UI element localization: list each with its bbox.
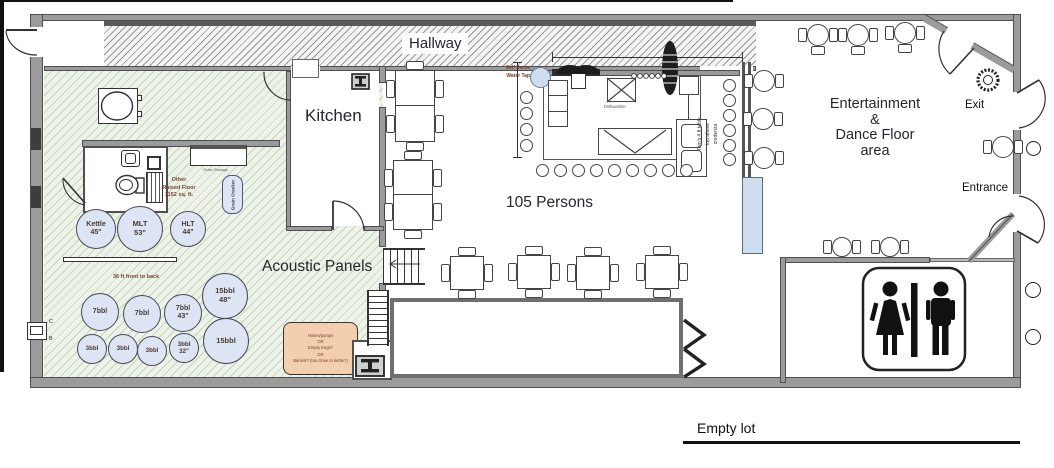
- chair: [852, 240, 861, 254]
- tank-label: 7bbl: [93, 308, 107, 316]
- kitchen-wall-bottom-1: [286, 226, 332, 231]
- chair: [898, 44, 912, 53]
- tank: HLT44": [170, 211, 206, 247]
- corner-diagonal-edge: [924, 14, 1014, 66]
- chair: [386, 115, 395, 133]
- outside-circle-2: [1025, 282, 1041, 298]
- chair: [404, 151, 422, 160]
- table-round: [992, 136, 1014, 158]
- kitchen-wall-bottom-2: [364, 226, 384, 231]
- chair: [811, 46, 825, 55]
- dim-line-v: [517, 62, 518, 158]
- bar-sink-stack: [548, 80, 568, 127]
- chair: [744, 151, 753, 165]
- chair: [406, 61, 424, 70]
- bar-sink-divider-2: [548, 111, 568, 112]
- bar-stool: [644, 164, 657, 177]
- kitchen-wall-left: [286, 71, 291, 228]
- bar-stool: [554, 164, 567, 177]
- bar-stool: [662, 164, 675, 177]
- persons-label: 105 Persons: [506, 194, 593, 212]
- tank: Kettle45": [76, 209, 116, 249]
- chair: [636, 263, 645, 281]
- floor-plan: Kitchen Hallway Grain Storage Other Rais…: [0, 0, 1054, 468]
- chair: [885, 26, 894, 40]
- dim-tick-h1: [552, 52, 553, 62]
- chair: [900, 240, 909, 254]
- chair: [871, 240, 880, 254]
- chair: [525, 289, 543, 298]
- bar-stool: [680, 164, 693, 177]
- table-square: [395, 105, 435, 142]
- tank-label: 3bbl: [117, 345, 130, 352]
- tank-size: 44": [182, 229, 193, 237]
- grain-cracker: Grain Cracker: [222, 175, 243, 214]
- tank-label: 15bbl: [216, 337, 236, 346]
- corner-door-gap: [946, 31, 972, 46]
- table-round: [752, 108, 774, 130]
- toms-note: Tom's 4 ft table top above credenza: [696, 90, 724, 178]
- entertainment-label: Entertainment & Dance Floor area: [805, 97, 945, 160]
- bathroom-vent: [147, 156, 161, 170]
- chair: [851, 46, 865, 55]
- chair: [774, 112, 783, 126]
- ladder-vertical: [367, 290, 389, 346]
- table-square: [450, 256, 484, 290]
- wreath-icon: [978, 70, 998, 90]
- empty-lot-line: [683, 441, 1020, 444]
- tank: 3bbl32": [169, 333, 199, 363]
- bar-stool: [723, 124, 736, 137]
- exit-door: [1017, 80, 1045, 128]
- table-round: [880, 237, 900, 257]
- wall-fixture-inner: [30, 326, 43, 335]
- table-round: [847, 24, 869, 46]
- table-square: [517, 255, 551, 289]
- table-round: [832, 237, 852, 257]
- chair: [404, 230, 422, 239]
- table-round: [753, 70, 775, 92]
- restroom-divider: [911, 283, 918, 357]
- tank-size: 45": [90, 229, 101, 237]
- chair: [435, 115, 444, 133]
- bar-cross-box: [571, 72, 586, 89]
- chair: [525, 246, 543, 255]
- chair: [823, 240, 832, 254]
- restroom-wall-left: [780, 257, 786, 383]
- tank: 7bbl: [123, 295, 161, 333]
- sink-basin: [125, 153, 136, 164]
- chair: [829, 28, 838, 42]
- entrance-door: [1017, 196, 1044, 243]
- outside-circle-1: [1026, 141, 1041, 156]
- bar-stool: [520, 123, 533, 136]
- chair: [458, 290, 476, 299]
- tank-label: 3bbl: [178, 341, 191, 348]
- wall-bottom: [30, 377, 1021, 388]
- utility-room: [352, 340, 392, 380]
- restroom-wall-top: [780, 257, 930, 263]
- chair: [838, 28, 847, 42]
- door-gap-exit: [1013, 92, 1021, 130]
- av-closet: [742, 177, 763, 254]
- chair: [584, 290, 602, 299]
- screen-edge-top: [0, 0, 733, 2]
- tank-label: 3bbl: [86, 345, 99, 352]
- grain-storage-label: Grain Storage: [203, 167, 228, 172]
- chair: [798, 28, 807, 42]
- corner-door: [939, 31, 974, 74]
- table-square: [393, 160, 433, 196]
- kitchen-room: [291, 71, 379, 226]
- chair: [869, 28, 878, 42]
- dishwasher-label: Dishwasher: [604, 104, 626, 109]
- bar-stool: [723, 94, 736, 107]
- table-square: [645, 255, 679, 289]
- vestibule-wall-edge: [969, 214, 1013, 261]
- tank: 15bbl48": [202, 273, 248, 319]
- bar-stool: [723, 109, 736, 122]
- chair: [916, 26, 925, 40]
- chair: [384, 203, 393, 221]
- table-square: [576, 256, 610, 290]
- door-gap-entrance: [1013, 194, 1021, 232]
- chair: [386, 80, 395, 98]
- chair: [743, 112, 752, 126]
- bar-stool: [723, 79, 736, 92]
- marker-b: B: [49, 336, 53, 342]
- tank: 7bbl: [81, 293, 119, 331]
- tank-size: 43": [177, 313, 188, 321]
- grain-storage-shelf: [190, 145, 247, 166]
- bar-stool: [723, 139, 736, 152]
- dishwasher-box: [607, 78, 636, 102]
- bar-stool: [572, 164, 585, 177]
- bar-stool: [536, 164, 549, 177]
- stage-rect: [390, 298, 683, 378]
- table-square: [395, 70, 435, 107]
- dim-tick-v1: [513, 62, 522, 63]
- grain-cracker-label: Grain Cracker: [230, 179, 235, 209]
- chair: [551, 263, 560, 281]
- tank: 3bbl: [77, 334, 107, 364]
- bar-stool: [520, 107, 533, 120]
- other-floor-note: Other Raised Floor 1152 sq. ft.: [148, 177, 210, 200]
- bar-stool: [520, 91, 533, 104]
- door-gap-topleft: [30, 27, 43, 57]
- bar-stool: [723, 153, 736, 166]
- tank-label: Kettle: [86, 221, 105, 229]
- chair: [775, 74, 784, 88]
- wall-top: [30, 14, 1021, 21]
- chair: [433, 203, 442, 221]
- tank: 15bbl: [203, 318, 249, 364]
- table-square: [393, 194, 433, 230]
- tank-label: HLT: [181, 221, 194, 229]
- chair: [775, 151, 784, 165]
- table-round: [807, 24, 829, 46]
- front-to-back-label: 36 ft front to back: [113, 274, 159, 280]
- chair: [458, 247, 476, 256]
- dim-line-h: [552, 57, 743, 58]
- window-left-2: [31, 186, 41, 208]
- entrance-label: Entrance: [962, 182, 1008, 194]
- stairs-horizontal: [383, 248, 425, 285]
- dim-tick-h2: [742, 52, 743, 62]
- chair: [484, 264, 493, 282]
- bar-sink-divider-1: [548, 95, 568, 96]
- exit-label: Exit: [965, 99, 984, 111]
- chair: [433, 169, 442, 187]
- chair: [1014, 140, 1023, 154]
- chair: [744, 74, 753, 88]
- mill-knob-2: [137, 111, 142, 117]
- chair: [610, 264, 619, 282]
- storage-note-box: Hoses/pumps OR Empty Kegs? OR Barrels? (…: [283, 322, 358, 375]
- table-round: [894, 22, 916, 44]
- tank-label: 3bbl: [146, 347, 159, 354]
- pos-connector: [688, 95, 689, 119]
- folding-door-chevrons: [684, 320, 704, 377]
- window-left-1: [31, 128, 41, 150]
- chair: [441, 264, 450, 282]
- tank-size: 32": [179, 348, 189, 355]
- chair: [653, 289, 671, 298]
- tank-size: 48": [219, 296, 231, 305]
- chair: [508, 263, 517, 281]
- outside-circle-3: [1025, 329, 1041, 345]
- tank-size: 53": [134, 229, 146, 238]
- dim-tick-v2: [513, 157, 522, 158]
- vestibule-door-arc: [989, 216, 1013, 237]
- tank: 3bbl: [137, 336, 167, 366]
- mill-box: [98, 88, 138, 124]
- bench: [63, 257, 177, 262]
- hallway-label: Hallway: [409, 35, 462, 52]
- tank: 7bbl43": [164, 294, 202, 332]
- tank: MLT53": [117, 206, 163, 252]
- bar-stool: [590, 164, 603, 177]
- tank-label: 7bbl: [135, 310, 149, 318]
- chair: [435, 80, 444, 98]
- corner-diagonal-wall: [924, 18, 1014, 70]
- chair: [679, 263, 688, 281]
- mill-knob-1: [137, 95, 142, 101]
- marker-c: C: [49, 319, 53, 325]
- restroom-sign: [860, 265, 968, 375]
- bar-stool: [608, 164, 621, 177]
- wall-divider-1: [379, 66, 386, 83]
- acoustic-panels-label: Acoustic Panels: [262, 258, 372, 276]
- bar-stool: [626, 164, 639, 177]
- restroom-counter: [930, 258, 1015, 262]
- keg-cooler: [598, 128, 672, 155]
- self-serve-label: Self Serve Water Tap: [492, 65, 530, 80]
- screen-edge-left: [0, 0, 4, 372]
- chair: [584, 247, 602, 256]
- chair: [983, 140, 992, 154]
- chair: [384, 169, 393, 187]
- chair: [567, 264, 576, 282]
- chair: [406, 142, 424, 151]
- kitchen-door-leaf: [292, 59, 319, 78]
- tank-label: 7bbl: [176, 305, 190, 313]
- bar-stool: [520, 139, 533, 152]
- chair: [653, 246, 671, 255]
- vestibule-wall: [969, 214, 1013, 261]
- kitchen-label: Kitchen: [305, 106, 362, 126]
- tank: 3bbl: [108, 334, 138, 364]
- table-round: [753, 147, 775, 169]
- empty-lot-label: Empty lot: [697, 420, 755, 436]
